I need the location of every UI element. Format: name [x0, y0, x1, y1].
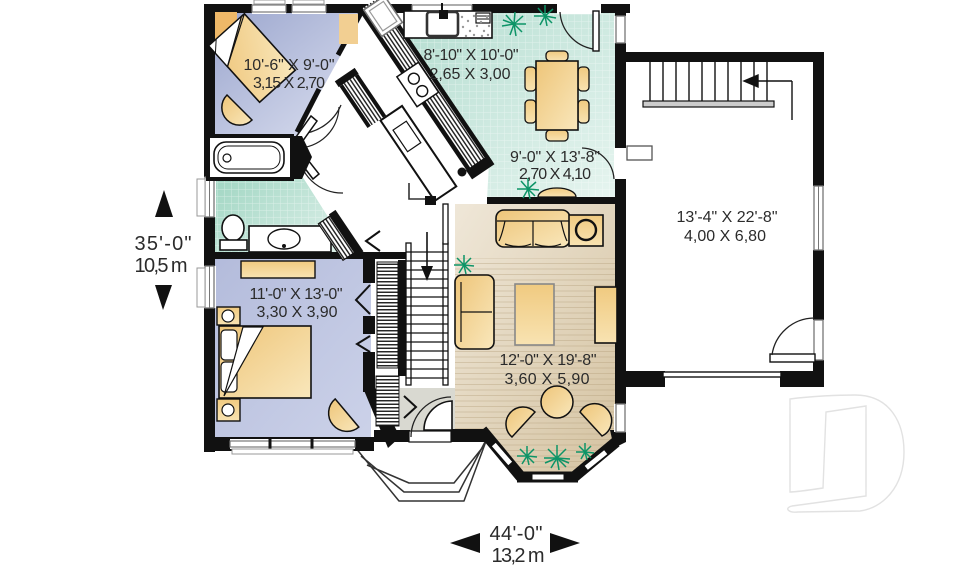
svg-text:3,15 X 2,70: 3,15 X 2,70 [253, 75, 325, 92]
svg-text:10,5 m: 10,5 m [135, 255, 188, 277]
svg-text:44'-0": 44'-0" [490, 523, 543, 545]
svg-text:2,70 X 4,10: 2,70 X 4,10 [519, 166, 591, 183]
svg-text:2,65 X 3,00: 2,65 X 3,00 [430, 66, 511, 83]
svg-text:12'-0" X 19'-8": 12'-0" X 19'-8" [500, 352, 597, 369]
svg-text:13'-4" X 22'-8": 13'-4" X 22'-8" [677, 209, 778, 226]
svg-text:13,2 m: 13,2 m [492, 545, 545, 567]
svg-text:4,00 X 6,80: 4,00 X 6,80 [684, 228, 766, 245]
svg-text:8'-10" X 10'-0": 8'-10" X 10'-0" [424, 47, 519, 64]
svg-text:3,30 X 3,90: 3,30 X 3,90 [257, 304, 338, 321]
svg-text:3,60 X 5,90: 3,60 X 5,90 [505, 371, 590, 388]
svg-text:9'-0" X 13'-8": 9'-0" X 13'-8" [510, 149, 600, 166]
svg-text:11'-0" X 13'-0": 11'-0" X 13'-0" [250, 286, 343, 303]
svg-text:10'-6" X 9'-0": 10'-6" X 9'-0" [244, 57, 335, 74]
